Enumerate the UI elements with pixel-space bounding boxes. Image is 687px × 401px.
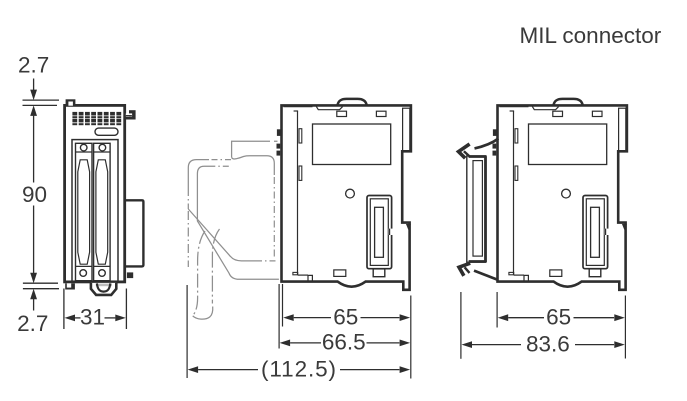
svg-text:66.5: 66.5 — [322, 330, 366, 355]
svg-text:83.6: 83.6 — [526, 331, 570, 356]
svg-text:(112.5): (112.5) — [261, 356, 337, 381]
svg-text:2.7: 2.7 — [17, 311, 48, 336]
svg-text:31: 31 — [80, 305, 105, 330]
svg-text:90: 90 — [22, 182, 47, 207]
svg-text:MIL connector: MIL connector — [520, 23, 662, 48]
svg-text:2.7: 2.7 — [18, 52, 49, 77]
svg-text:65: 65 — [546, 304, 571, 329]
svg-text:65: 65 — [333, 304, 358, 329]
